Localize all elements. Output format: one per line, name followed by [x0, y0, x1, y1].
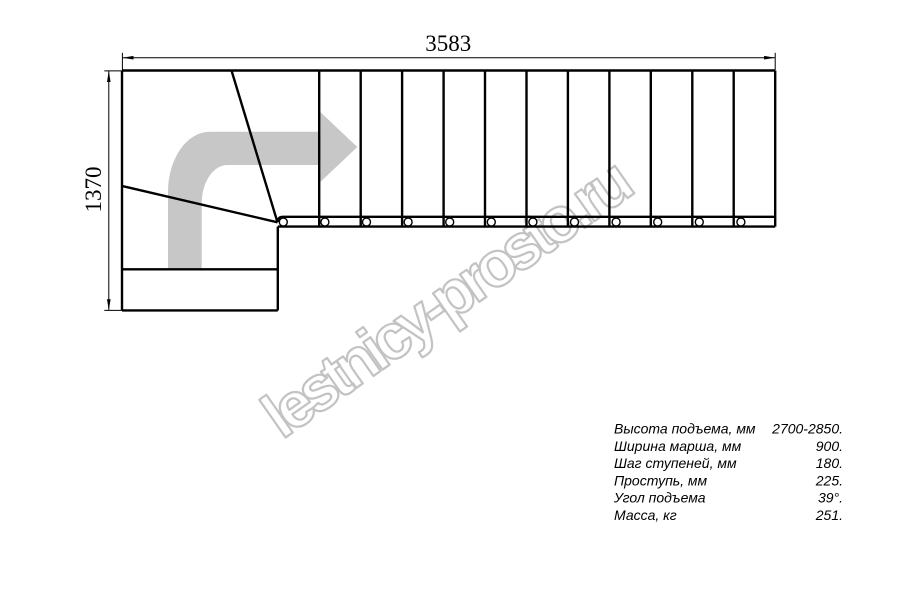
svg-text:900.: 900.: [816, 438, 843, 454]
svg-text:Ширина марша, мм: Ширина марша, мм: [614, 438, 742, 454]
svg-text:Масса, кг: Масса, кг: [614, 507, 677, 523]
svg-text:39°.: 39°.: [818, 490, 843, 506]
svg-text:225.: 225.: [815, 472, 843, 488]
svg-text:2700-2850.: 2700-2850.: [771, 421, 843, 437]
svg-text:251.: 251.: [815, 507, 843, 523]
svg-text:1370: 1370: [81, 167, 106, 213]
svg-text:Проступь, мм: Проступь, мм: [614, 472, 708, 488]
svg-text:Высота подъема, мм: Высота подъема, мм: [614, 421, 756, 437]
svg-text:lestnicy-prosto.ru: lestnicy-prosto.ru: [250, 147, 643, 451]
svg-text:Шаг ступеней, мм: Шаг ступеней, мм: [614, 455, 737, 471]
svg-text:180.: 180.: [816, 455, 843, 471]
svg-text:3583: 3583: [425, 31, 471, 56]
svg-text:Угол подъема: Угол подъема: [613, 490, 706, 506]
